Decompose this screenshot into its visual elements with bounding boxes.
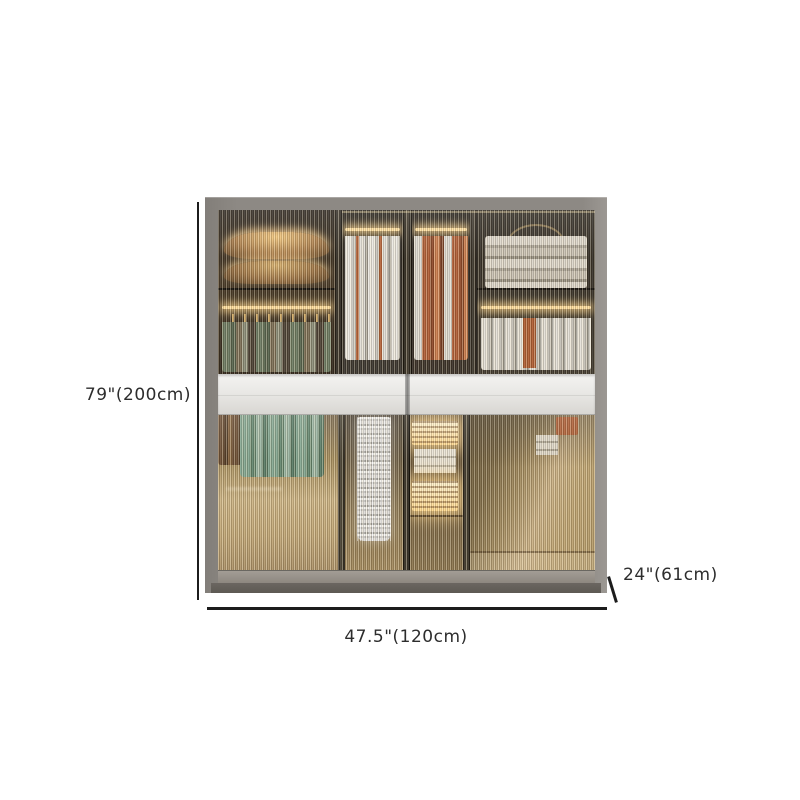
lower-right-compartment — [470, 415, 595, 570]
hanging-clothes — [218, 415, 242, 465]
lower-left-compartment — [218, 415, 338, 570]
lit-shelf — [412, 421, 458, 445]
door-stile — [463, 415, 470, 570]
hanging-clothes — [240, 415, 324, 477]
led-strip — [415, 228, 467, 231]
upper-left-compartment — [218, 210, 335, 374]
bottom-rail — [218, 570, 595, 583]
lower-dress-compartment — [345, 415, 403, 570]
led-strip — [481, 306, 591, 309]
hanging-clothes — [523, 318, 536, 368]
width-dimension-label: 47.5"(120cm) — [256, 627, 556, 647]
depth-dimension-line — [607, 576, 618, 603]
folded-blanket — [224, 261, 329, 284]
top-light-line — [342, 211, 595, 213]
hanging-clothes — [414, 236, 468, 360]
led-strip — [222, 306, 331, 309]
folded-clothes-stack — [485, 236, 587, 288]
shelf-edge — [477, 288, 595, 290]
floor-light — [470, 553, 595, 570]
wardrobe-upper-section — [218, 210, 595, 374]
upper-right-compartment — [477, 210, 595, 374]
folded-garment — [556, 417, 578, 435]
hanging-clothes — [481, 318, 591, 370]
hanging-clothes — [222, 322, 331, 372]
led-strip — [345, 228, 400, 231]
door-split — [405, 374, 410, 415]
door-stile — [338, 415, 345, 570]
wardrobe-image — [205, 197, 607, 593]
height-dimension-label: 79"(200cm) — [45, 385, 191, 405]
wardrobe-lower-section — [218, 415, 595, 570]
height-dimension-line — [197, 202, 199, 600]
drawer-band — [218, 374, 595, 415]
depth-dimension-label: 24"(61cm) — [623, 565, 718, 585]
lower-shelf-compartment — [410, 415, 463, 570]
upper-middle-left-compartment — [342, 210, 403, 374]
shelf-edge — [218, 288, 335, 290]
wardrobe-base — [211, 583, 601, 593]
shelf-edge — [410, 515, 463, 517]
width-dimension-line — [207, 607, 607, 610]
door-stile — [335, 210, 342, 374]
product-dimension-image: 79"(200cm) 47.5"(120cm) 24"(61cm) — [0, 0, 800, 800]
door-split — [403, 210, 412, 374]
sequin-dress — [357, 417, 391, 541]
upper-middle-right-compartment — [412, 210, 470, 374]
door-stile — [470, 210, 477, 374]
folded-clothes-stack — [536, 435, 558, 455]
folded-clothes-stack — [414, 449, 456, 473]
door-split — [403, 415, 410, 570]
glass-reflection — [226, 487, 282, 491]
hanging-clothes — [345, 236, 400, 360]
folded-blanket — [224, 232, 329, 259]
lit-shelf — [412, 481, 458, 511]
